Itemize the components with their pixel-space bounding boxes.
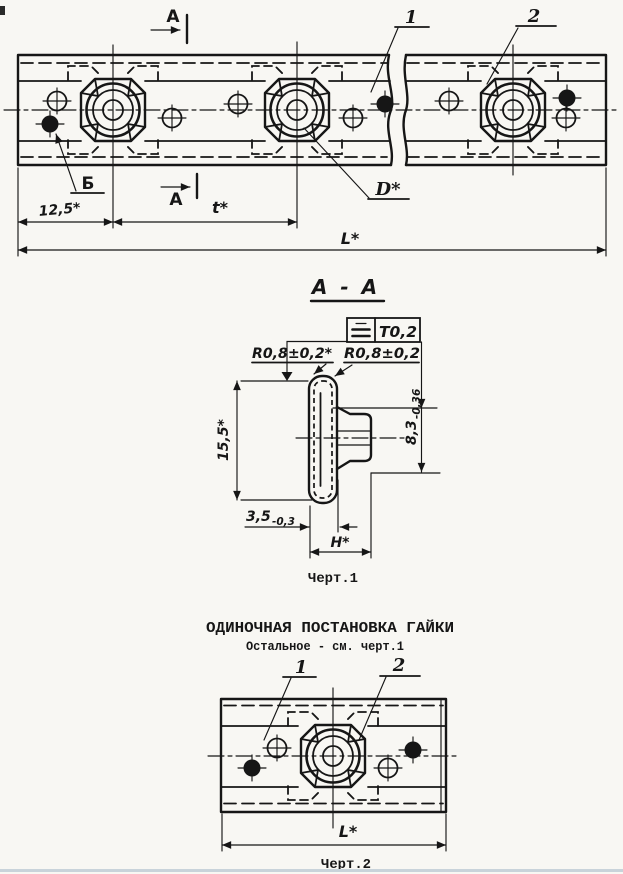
hole-open — [339, 105, 367, 131]
dim-depth-tolerance: -0,36 — [411, 389, 423, 419]
single-view-subtitle: Остальное - см. черт.1 — [246, 639, 404, 654]
plan-view: А А 1 2 Б D* — [4, 6, 619, 256]
hole-open — [158, 105, 186, 131]
scan-speck — [0, 6, 5, 15]
hole-filled — [399, 737, 427, 763]
rail-section — [309, 376, 337, 503]
datum-triangle-icon — [282, 372, 293, 381]
radius-left: R0,8±0,2* — [252, 346, 333, 374]
nut-section — [296, 407, 404, 469]
drawing-canvas: А А 1 2 Б D* — [0, 0, 623, 874]
dim-thickness-tolerance: -0,3 — [272, 516, 295, 528]
hole-filled — [238, 755, 266, 781]
radius-right: R0,8±0,2 — [335, 346, 420, 376]
dim-depth-value: 8,3 — [404, 420, 420, 445]
hole-filled — [553, 85, 581, 111]
dim-nut-height-label: H* — [330, 535, 350, 551]
single-view-title: ОДИНОЧНАЯ ПОСТАНОВКА ГАЙКИ — [206, 619, 454, 637]
hole-open — [263, 735, 291, 761]
single-dim-length: L* — [222, 814, 446, 851]
callout-1: 1 — [371, 7, 429, 92]
radius-right-label: R0,8±0,2 — [344, 346, 420, 362]
dim-length-label: L* — [341, 229, 360, 248]
hole-filled — [371, 91, 399, 117]
dim-offset-label: 12,5* — [38, 200, 82, 220]
single-nut-view: ОДИНОЧНАЯ ПОСТАНОВКА ГАЙКИ Остальное - с… — [206, 619, 458, 873]
hole-open — [552, 105, 580, 131]
dim-nut-height: H* — [310, 473, 371, 558]
hole-label-b: Б — [82, 174, 95, 194]
callout-1-label: 1 — [405, 7, 418, 28]
single-callout-2: 2 — [359, 655, 420, 740]
dim-height: 15,5* — [216, 381, 312, 500]
hole-open — [374, 755, 402, 781]
diameter-label: D* — [374, 179, 401, 200]
section-title: А - А — [310, 275, 380, 299]
section-label-bottom: А — [169, 190, 183, 210]
hole-filled — [36, 111, 64, 137]
section-view: А - А T0,2 R0,8±0,2* R0,8±0,2 — [216, 275, 440, 587]
scan-edge-line — [0, 869, 623, 872]
dim-thickness-value: 3,5 — [246, 509, 271, 525]
figure-1-caption: Черт.1 — [308, 571, 358, 587]
technical-drawing-page: А А 1 2 Б D* — [0, 0, 623, 874]
dim-pitch-label: t* — [212, 198, 229, 217]
parallelism-symbol-icon — [353, 324, 370, 337]
dim-height-label: 15,5* — [216, 418, 232, 461]
callout-2-label: 2 — [527, 6, 541, 27]
section-label-top: А — [166, 7, 180, 27]
section-mark-bottom: А — [161, 174, 197, 210]
hole-open — [224, 91, 252, 117]
plan-dimensions: 12,5* t* L* — [18, 168, 606, 256]
section-mark-top: А — [151, 7, 187, 43]
radius-left-label: R0,8±0,2* — [252, 346, 333, 362]
single-dim-length-label: L* — [339, 822, 358, 841]
single-callout-1-label: 1 — [295, 657, 308, 678]
single-callout-2-label: 2 — [392, 655, 406, 676]
tolerance-value: T0,2 — [379, 323, 417, 341]
